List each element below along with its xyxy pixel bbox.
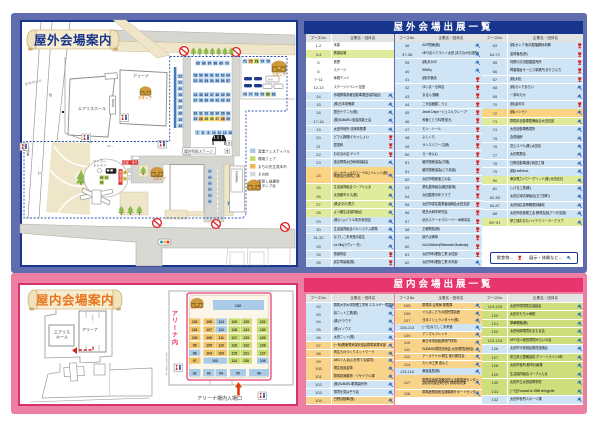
svg-text:52: 52 [199,79,203,83]
svg-text:32: 32 [205,112,209,116]
svg-text:68: 68 [214,61,218,65]
svg-text:47: 47 [210,93,214,97]
svg-text:81: 81 [272,93,276,97]
svg-text:110: 110 [218,344,224,348]
svg-text:86: 86 [208,176,212,180]
svg-text:56: 56 [221,79,225,83]
svg-text:エント: エント [91,315,94,323]
svg-text:114: 114 [231,359,237,363]
svg-text:97: 97 [193,359,197,363]
svg-text:14: 14 [178,124,182,128]
svg-text:85: 85 [208,182,212,186]
svg-text:アリーナ内: アリーナ内 [171,310,178,346]
svg-text:ホール: ホール [56,335,68,340]
svg-text:83: 83 [208,194,212,198]
svg-text:エアリスホール: エアリスホール [78,106,106,111]
svg-text:96: 96 [257,371,261,375]
svg-text:70: 70 [225,61,229,65]
svg-text:115: 115 [231,351,237,355]
svg-text:屋外特設ステージ: 屋外特設ステージ [184,149,213,154]
svg-text:82: 82 [208,200,212,204]
svg-text:66: 66 [202,61,206,65]
svg-text:スタンプ: スタンプ [138,95,152,100]
svg-text:54: 54 [210,79,214,83]
svg-text:92: 92 [193,371,197,375]
svg-text:116: 116 [231,344,237,348]
svg-text:22: 22 [178,74,182,78]
svg-text:127: 127 [260,351,266,355]
svg-text:93: 93 [207,371,211,375]
svg-text:36: 36 [226,112,230,116]
svg-text:72: 72 [249,60,253,64]
svg-text:87: 87 [208,170,212,174]
svg-text:43: 43 [226,98,230,102]
svg-text:122: 122 [243,344,249,348]
svg-text:129: 129 [260,336,266,340]
svg-text:37: 37 [194,98,198,102]
svg-text:109: 109 [218,351,224,355]
svg-text:106: 106 [206,336,212,340]
svg-text:132: 132 [235,304,241,308]
svg-text:74: 74 [261,60,265,64]
svg-text:44: 44 [194,93,198,97]
svg-text:29: 29 [226,117,230,121]
svg-text:124: 124 [243,328,249,332]
svg-text:65: 65 [196,61,200,65]
svg-text:アリーナ場内入場口: アリーナ場内入場口 [197,395,242,402]
svg-text:8: 8 [202,131,204,135]
svg-text:125: 125 [243,320,249,324]
svg-text:体育館: 体育館 [111,98,114,107]
svg-text:103: 103 [212,359,218,363]
svg-text:34: 34 [215,112,219,116]
svg-text:文化会館: 文化会館 [235,170,239,182]
svg-text:71: 71 [243,60,247,64]
svg-text:90: 90 [100,176,104,180]
svg-text:33: 33 [210,112,214,116]
svg-text:その他: その他 [258,172,269,177]
svg-text:94: 94 [219,371,223,375]
svg-text:42: 42 [221,98,225,102]
svg-text:59: 59 [199,74,203,78]
svg-text:45: 45 [199,93,203,97]
svg-text:49: 49 [221,93,225,97]
svg-text:111: 111 [219,336,224,340]
svg-text:23: 23 [194,117,198,121]
svg-text:101: 101 [192,328,198,332]
svg-text:91: 91 [105,176,109,180]
svg-text:119: 119 [231,320,237,324]
svg-text:宝探し抽選会: 宝探し抽選会 [258,179,280,184]
svg-text:78: 78 [255,93,259,97]
svg-text:10: 10 [212,131,216,135]
svg-text:99: 99 [193,344,197,348]
svg-text:50: 50 [226,93,230,97]
svg-text:107: 107 [206,328,212,332]
svg-text:117: 117 [231,336,237,340]
svg-text:5: 5 [228,142,230,146]
svg-text:まちの先生見本市: まちの先生見本市 [258,164,287,169]
svg-text:スタンプ: スタンプ [153,176,166,181]
svg-text:113: 113 [218,320,224,324]
svg-text:73: 73 [255,60,259,64]
svg-text:76: 76 [243,93,247,97]
svg-text:104: 104 [206,351,212,355]
svg-text:産業フェスティバル: 産業フェスティバル [258,148,291,153]
svg-text:80: 80 [266,93,270,97]
svg-text:P: P [38,171,41,176]
svg-text:9-m: 9-m [268,78,274,82]
svg-text:39: 39 [205,98,209,102]
svg-text:駐: 駐 [49,92,52,97]
svg-text:16: 16 [178,112,182,116]
svg-text:25: 25 [205,117,209,121]
svg-text:屋内会場案内: 屋内会場案内 [36,293,114,308]
svg-text:105: 105 [206,344,212,348]
svg-text:41: 41 [215,98,219,102]
svg-text:131: 131 [260,320,266,324]
svg-text:グラウンド: グラウンド [24,78,43,87]
svg-text:35: 35 [221,112,225,116]
svg-text:77: 77 [249,93,253,97]
svg-text:61: 61 [210,74,214,78]
svg-text:30: 30 [194,112,198,116]
svg-text:アリーナ: アリーナ [133,73,149,79]
svg-text:62: 62 [215,74,219,78]
svg-text:58: 58 [194,74,198,78]
svg-text:21: 21 [178,81,182,85]
svg-text:19: 19 [178,93,182,97]
svg-text:57: 57 [226,79,230,83]
svg-text:40: 40 [210,98,214,102]
svg-text:46: 46 [205,93,209,97]
svg-text:トレイン: トレイン [93,164,107,168]
svg-text:51: 51 [194,79,198,83]
svg-text:123: 123 [243,336,249,340]
svg-text:112: 112 [218,328,224,332]
svg-text:126: 126 [260,359,266,363]
svg-text:48: 48 [215,93,219,97]
svg-text:63: 63 [221,74,225,78]
svg-text:環境フェア: 環境フェア [258,156,276,161]
svg-text:20: 20 [178,87,182,91]
svg-text:100: 100 [192,336,198,340]
svg-text:12: 12 [223,131,227,135]
svg-text:55: 55 [215,79,219,83]
svg-text:15: 15 [178,118,182,122]
svg-text:7: 7 [197,131,199,135]
svg-text:9: 9 [207,131,209,135]
svg-text:98: 98 [193,351,197,355]
svg-text:本部・受付: 本部・受付 [123,160,138,165]
svg-text:38: 38 [199,98,203,102]
svg-text:60: 60 [205,74,209,78]
svg-text:18: 18 [178,99,182,103]
svg-text:120: 120 [243,359,249,363]
svg-text:118: 118 [231,328,237,332]
svg-text:スタンプ台: スタンプ台 [258,183,276,188]
svg-text:102: 102 [192,320,198,324]
svg-text:スタンプ: スタンプ [191,306,202,310]
svg-text:アリーナ: アリーナ [82,326,98,332]
svg-text:13: 13 [228,131,232,135]
svg-text:26: 26 [210,117,214,121]
svg-text:24: 24 [199,117,203,121]
svg-text:5: 5 [226,150,228,154]
svg-text:11: 11 [218,131,222,135]
svg-text:屋外会場案内: 屋外会場案内 [34,33,112,48]
svg-text:53: 53 [205,79,209,83]
svg-text:27: 27 [215,117,219,121]
svg-text:84: 84 [208,188,212,192]
svg-text:95: 95 [236,371,240,375]
svg-text:エントランスホール: エントランスホール [165,352,168,375]
svg-text:31: 31 [199,112,203,116]
svg-text:121: 121 [243,351,249,355]
svg-text:130: 130 [260,328,266,332]
svg-text:128: 128 [260,344,266,348]
svg-text:17: 17 [178,105,182,109]
svg-text:108: 108 [206,320,212,324]
svg-text:69: 69 [219,61,223,65]
svg-text:28: 28 [221,117,225,121]
svg-text:75: 75 [266,60,270,64]
svg-text:67: 67 [208,61,212,65]
svg-text:GC—: GC— [107,144,114,148]
svg-text:64: 64 [226,74,230,78]
svg-text:89: 89 [100,181,104,185]
svg-text:救護会場: 救護会場 [119,169,123,183]
svg-text:79: 79 [260,93,264,97]
